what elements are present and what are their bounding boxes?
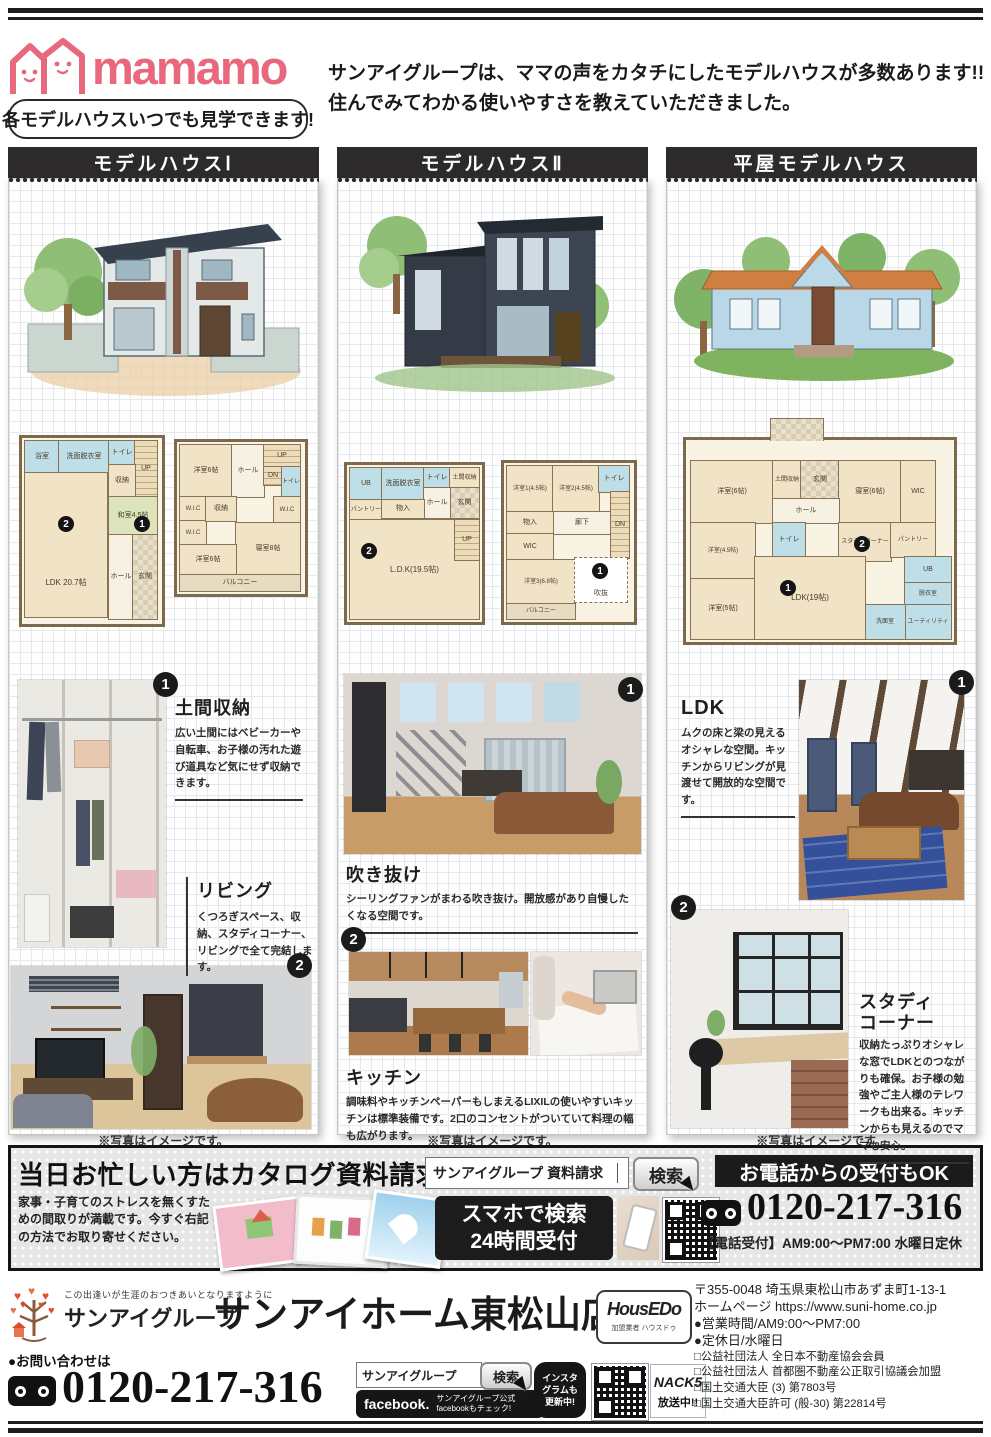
plan-stairs-dn: DN xyxy=(263,466,283,486)
dining-table xyxy=(207,1078,303,1122)
plan-room-toilet: トイレ xyxy=(772,522,806,558)
plan-badge-1: 1 xyxy=(134,516,150,532)
footer-phone-number: 0120-217-316 xyxy=(62,1364,323,1410)
plant xyxy=(707,1010,725,1036)
housedo-name: HousEDo xyxy=(598,1299,690,1320)
brand-tagline-badge: 各モデルハウスいつでも見学できます! xyxy=(8,99,308,139)
plan-room-yoshitsu-45: 洋室(4.5帖) xyxy=(690,522,756,580)
plan-room-hall: ホール xyxy=(108,534,134,620)
plan-room-hall: ホール xyxy=(423,487,451,519)
clothing-item xyxy=(27,722,46,801)
house-illustration-2 xyxy=(345,186,640,401)
plan-room-yoshitsu-6: 洋室(6帖) xyxy=(690,460,774,524)
plan-room-wic: WIC xyxy=(506,533,554,561)
storage-basket xyxy=(74,740,110,768)
grid-window xyxy=(733,932,843,1030)
plan-room-yoshitsu-1: 洋室1(4.5帖) xyxy=(506,465,554,513)
homepage-line: ホームページ https://www.suni-home.co.jp xyxy=(694,1299,946,1316)
feature-2-title: リビング xyxy=(197,877,315,903)
legal-line: □国土交通大臣 (3) 第7803号 xyxy=(694,1381,946,1397)
plan-room-hallway: 廊下 xyxy=(552,511,612,535)
clothing-item xyxy=(76,800,90,866)
feature-1-badge: 1 xyxy=(618,677,643,702)
plan-stairs-up: UP xyxy=(454,519,480,561)
floorplan-1f: 浴室 洗面脱衣室 トイレ UP 収納 和室4.5帖 LDK 20.7帖 ホール … xyxy=(19,435,165,627)
clothing-item xyxy=(92,800,104,860)
plan-room-toilet: トイレ xyxy=(598,465,630,493)
photo-study-corner xyxy=(671,910,848,1128)
blender xyxy=(533,956,555,1020)
feature-2-title: キッチン xyxy=(346,1068,422,1089)
footer-search-input[interactable]: サンアイグループ xyxy=(356,1362,482,1388)
plan-room-entrance: 玄関 xyxy=(800,460,840,500)
appliance xyxy=(593,970,637,1004)
plan-room-utility: ユーティリティ xyxy=(904,604,952,640)
feature-2-desc: 収納たっぷりオシャレな窓でLDKとのつながりも確保。お子様の勉強やご主人様のテレ… xyxy=(859,1037,969,1164)
legal-line: □国土交通大臣許可 (般-30) 第22814号 xyxy=(694,1397,946,1413)
plan-room-washroom: 洗面脱衣室 xyxy=(58,440,110,474)
plan-porch xyxy=(770,418,824,441)
column-model-house-1: モデルハウスⅠ xyxy=(8,147,319,1135)
flyer-page: mamamo 各モデルハウスいつでも見学できます! サンアイグループは、ママの声… xyxy=(0,0,991,1437)
store-name: サンアイホーム東松山店 xyxy=(214,1284,618,1338)
housedo-sub: 加盟業者 ハウスドゥ xyxy=(598,1323,690,1333)
catalog-title: 当日お忙しい方はカタログ資料請求 xyxy=(18,1155,442,1192)
photo-kitchen-outlet xyxy=(531,952,641,1055)
brochure-figures xyxy=(312,1217,325,1236)
instagram-badge[interactable]: インスタ グラムも 更新中! xyxy=(534,1362,586,1418)
photo-ldk xyxy=(799,680,964,900)
insta-line-1: インスタ xyxy=(542,1372,578,1384)
column-3-title: 平屋モデルハウス xyxy=(666,147,977,178)
holiday-line: ●定休日/水曜日 xyxy=(694,1333,946,1350)
low-table xyxy=(847,826,921,860)
plan-room-entrance: 玄関 xyxy=(449,487,480,519)
feature-2-title: スタディコーナー xyxy=(859,992,945,1033)
feature-1-title: 吹き抜け xyxy=(346,865,422,886)
catalog-search-value: サンアイグループ 資料請求 xyxy=(426,1163,603,1183)
plan-room-yoshitsu-3: 洋室3(6.8帖) xyxy=(506,559,576,605)
feature-1-desc: ムクの床と梁の見えるオシャレな空間。キッチンからリビングが見渡せて開放的な空間で… xyxy=(681,725,795,818)
phone-hours: 【電話受付】AM9:00～PM7:00 水曜日定休 xyxy=(701,1232,962,1252)
plan-room-wic: W.I.C xyxy=(273,496,301,524)
house-illustration-1 xyxy=(16,186,311,401)
feature-2-badge: 2 xyxy=(287,953,312,978)
plan-room-yoshitsu-2: 洋室6帖 xyxy=(179,544,237,576)
photo-void-living xyxy=(344,674,641,854)
floorplan-2f: 洋室6帖 ホール UP DN トイレ W.I.C W.I.C 収納 W.I.C … xyxy=(174,439,308,597)
plan-stairs-up: UP xyxy=(263,444,301,468)
text-caret xyxy=(617,1163,619,1183)
plan-room-storage: 収納 xyxy=(205,496,237,522)
smart-line-1: スマホで検索 xyxy=(461,1201,586,1228)
photo-doma-storage xyxy=(18,680,166,947)
plan-room-storage: 物入 xyxy=(381,499,425,519)
window xyxy=(499,972,523,1008)
feature-1-badge: 1 xyxy=(949,670,974,695)
plan-room-toilet: トイレ xyxy=(281,466,301,498)
tv xyxy=(35,1038,105,1082)
feature-1-badge: 1 xyxy=(153,672,178,697)
wall-shelves xyxy=(51,1006,121,1009)
svg-text:♥: ♥ xyxy=(48,1305,55,1317)
freedial-icon xyxy=(8,1376,56,1406)
catalog-request-section: 当日お忙しい方はカタログ資料請求 サンアイグループ 資料請求 検索 お電話からの… xyxy=(8,1145,983,1271)
plan-room-doma: 土間収納 xyxy=(449,467,480,489)
floorplan-1f: UB 洗面脱衣室 トイレ 土間収納 玄関 パントリー ホール 物入 L.D.K(… xyxy=(344,462,485,625)
intro-line-1: サンアイグループは、ママの声をカタチにしたモデルハウスが多数あります!! xyxy=(328,58,984,85)
feature-2-desc: 調味料やキッチンペーパーもしまえるLIXILの使いやすいキッチンは標準装備です。… xyxy=(346,1094,641,1144)
group-name: サンアイグループ xyxy=(64,1301,237,1333)
plan-room-washroom: 洗面脱衣室 xyxy=(381,467,425,501)
legal-line: □公益社団法人 首都圏不動産公正取引協議会加盟 xyxy=(694,1365,946,1381)
brick-base xyxy=(791,1060,848,1128)
plan-room-wic: WIC xyxy=(900,460,936,524)
housedo-logo: HousEDo 加盟業者 ハウスドゥ xyxy=(596,1290,692,1344)
group-tree-logo: ♥♥ ♥♥ ♥♥ ♥ xyxy=(8,1286,60,1344)
smartphone-search-box: スマホで検索 24時間受付 xyxy=(435,1196,613,1260)
plan-room-entrance: 玄関 xyxy=(132,534,158,620)
study-nook xyxy=(189,984,263,1056)
plan-room-washitsu: 和室4.5帖 xyxy=(108,496,158,536)
column-3-panel: 洋室(6帖) 土間収納 玄関 寝室(6帖) WIC ホール トイレ スタディコー… xyxy=(666,178,977,1135)
plan-room-yoshitsu-1: 洋室6帖 xyxy=(179,444,233,498)
footer-search-value: サンアイグループ xyxy=(357,1367,456,1384)
plan-badge-1: 1 xyxy=(592,563,608,579)
chairs xyxy=(419,1034,431,1052)
plan-room-bath: 浴室 xyxy=(24,440,60,474)
qr-code xyxy=(592,1364,648,1420)
smartphone-photo xyxy=(617,1196,659,1260)
chair-stem xyxy=(701,1066,711,1110)
catalog-phone-number: 0120-217-316 xyxy=(747,1188,962,1226)
plan-room-toilet: トイレ xyxy=(108,440,136,466)
freedial-icon xyxy=(701,1200,741,1226)
feature-1-desc: シーリングファンがまわる吹き抜け。開放感があり自慢したくなる空間です。 xyxy=(346,891,638,934)
column-2-title: モデルハウスⅡ xyxy=(337,147,648,178)
plan-room-ldk: LDK 20.7帖 xyxy=(24,472,108,618)
plan-room-wic: W.I.C xyxy=(179,496,207,522)
hours-line: ●営業時間/AM9:00～PM7:00 xyxy=(694,1316,946,1333)
kitchen-island xyxy=(349,998,407,1032)
feature-2-badge: 2 xyxy=(341,927,366,952)
plan-room-ldk: LDK(19帖) xyxy=(754,556,866,640)
plant xyxy=(131,1026,157,1076)
plan-room-pantry: パントリー xyxy=(349,499,383,521)
brochure-roof xyxy=(250,1208,271,1222)
plan-room-doma: 土間収納 xyxy=(772,460,802,500)
column-1-title: モデルハウスⅠ xyxy=(8,147,319,178)
catalog-search-button-label: 検索 xyxy=(649,1162,683,1187)
pink-box xyxy=(116,870,156,898)
pendant-lights xyxy=(389,952,391,978)
high-windows xyxy=(400,682,436,722)
plan-room-pantry: パントリー xyxy=(890,522,936,558)
plan-badge-2: 2 xyxy=(58,516,74,532)
plan-room-toilet: トイレ xyxy=(423,467,451,489)
svg-text:♥: ♥ xyxy=(38,1300,44,1311)
feature-2-badge: 2 xyxy=(671,895,696,920)
insta-line-3: 更新中! xyxy=(545,1396,575,1408)
plan-room-ub: UB xyxy=(349,467,383,501)
leather-sofa xyxy=(494,792,614,834)
svg-text:♥: ♥ xyxy=(20,1300,26,1311)
bottom-double-rule xyxy=(8,1421,983,1433)
plan-balcony: バルコニー xyxy=(179,574,301,592)
photo-kitchen xyxy=(349,952,528,1055)
plan-stairs-up: UP xyxy=(134,440,158,498)
sofa xyxy=(13,1094,93,1128)
dark-door xyxy=(352,682,386,812)
plan-badge-2: 2 xyxy=(361,543,377,559)
feature-1-title: LDK xyxy=(681,697,725,720)
plan-room-yoshitsu-2: 洋室2(4.5帖) xyxy=(552,465,600,513)
plan-room-hall: ホール xyxy=(772,498,840,524)
facebook-line-1: サンアイグループ公式 xyxy=(436,1394,515,1403)
smart-line-2: 24時間受付 xyxy=(470,1228,577,1255)
plan-room-bedroom: 寝室8帖 xyxy=(235,522,301,576)
floorplan-2f: 洋室1(4.5帖) 洋室2(4.5帖) トイレ 廊下 DN 物入 WIC 洋室3… xyxy=(501,460,637,625)
insta-line-2: グラムも xyxy=(542,1384,578,1396)
plan-room-storage: 物入 xyxy=(506,511,554,535)
floorplan-hiraya: 洋室(6帖) 土間収納 玄関 寝室(6帖) WIC ホール トイレ スタディコー… xyxy=(683,437,957,645)
plan-room-hall: ホール xyxy=(231,444,265,498)
address-line: 〒355-0048 埼玉県東松山市あずま町1-13-1 xyxy=(694,1282,946,1299)
plan-room-wic: W.I.C xyxy=(179,520,207,546)
intro-line-2: 住んでみてわかる使いやすさを教えていただきました。 xyxy=(328,88,801,115)
facebook-line-2: facebookもチェック! xyxy=(436,1404,511,1413)
plan-room-bedroom: 寝室(6帖) xyxy=(838,460,902,524)
plan-balcony: バルコニー xyxy=(506,603,576,620)
top-double-rule xyxy=(8,8,983,20)
column-model-house-2: モデルハウスⅡ UB 洗面脱衣室 xyxy=(337,147,648,1135)
column-hiraya-model-house: 平屋モデルハウス 洋室(6帖) 土間収納 xyxy=(666,147,977,1135)
plan-room-storage: 収納 xyxy=(108,464,136,498)
facebook-note: サンアイグループ公式 facebookもチェック! xyxy=(436,1394,515,1415)
phone-in-hand xyxy=(622,1204,658,1253)
feature-1-desc: 広い土間にはベビーカーや自転車、お子様の汚れた遊び道具など気にせず収納できます。 xyxy=(175,725,303,801)
chair-back xyxy=(689,1038,723,1068)
navy-door xyxy=(807,738,837,812)
plan-room-yoshitsu-5: 洋室(5帖) xyxy=(690,578,756,640)
lantern xyxy=(24,894,50,942)
plan-room-senmen: 洗面室 xyxy=(864,604,906,640)
closet-rail xyxy=(22,718,162,721)
column-2-panel: UB 洗面脱衣室 トイレ 土間収納 玄関 パントリー ホール 物入 L.D.K(… xyxy=(337,178,648,1135)
address-block: 〒355-0048 埼玉県東松山市あずま町1-13-1 ホームページ https… xyxy=(694,1282,946,1413)
brochure-heart xyxy=(388,1209,423,1244)
catalog-desc: 家事・子育てのストレスを無くすための間取りが満載です。今すぐ右記の方法でお取り寄… xyxy=(18,1194,216,1246)
plan-stairs-dn: DN xyxy=(610,491,630,559)
house-illustration-3 xyxy=(674,189,969,389)
brand-logo-text: mamamo xyxy=(92,44,286,91)
nook-desk xyxy=(187,1056,267,1064)
plan-room-ub: UB xyxy=(904,556,952,584)
catalog-search-input[interactable]: サンアイグループ 資料請求 xyxy=(425,1157,629,1189)
svg-text:♥: ♥ xyxy=(28,1286,35,1298)
plan-room-datsui: 脱衣室 xyxy=(904,582,952,606)
plant xyxy=(596,760,622,804)
leather-sofa xyxy=(859,792,959,830)
footer: ♥♥ ♥♥ ♥♥ ♥ この出逢いが生涯のおつきあいとなりますように サンアイグル… xyxy=(8,1280,983,1420)
legal-line: □公益社団法人 全日本不動産協会会員 xyxy=(694,1350,946,1366)
plan-badge-2: 2 xyxy=(854,536,870,552)
dining-table xyxy=(413,1008,505,1034)
dark-box xyxy=(70,906,114,938)
mamamo-houses-icon xyxy=(8,38,86,96)
facebook-brand: facebook. xyxy=(364,1396,429,1412)
svg-text:♥: ♥ xyxy=(10,1305,17,1317)
clothing-item xyxy=(45,722,61,792)
facebook-box[interactable]: facebook. サンアイグループ公式 facebookもチェック! xyxy=(356,1390,544,1418)
feature-1-title: 土間収納 xyxy=(175,698,251,719)
slit-window xyxy=(29,976,119,992)
column-1-panel: 浴室 洗面脱衣室 トイレ UP 収納 和室4.5帖 LDK 20.7帖 ホール … xyxy=(8,178,319,1135)
staircase xyxy=(396,730,466,796)
kitchen-back xyxy=(909,750,964,790)
plan-badge-1: 1 xyxy=(780,580,796,596)
photo-living-room xyxy=(11,966,311,1129)
